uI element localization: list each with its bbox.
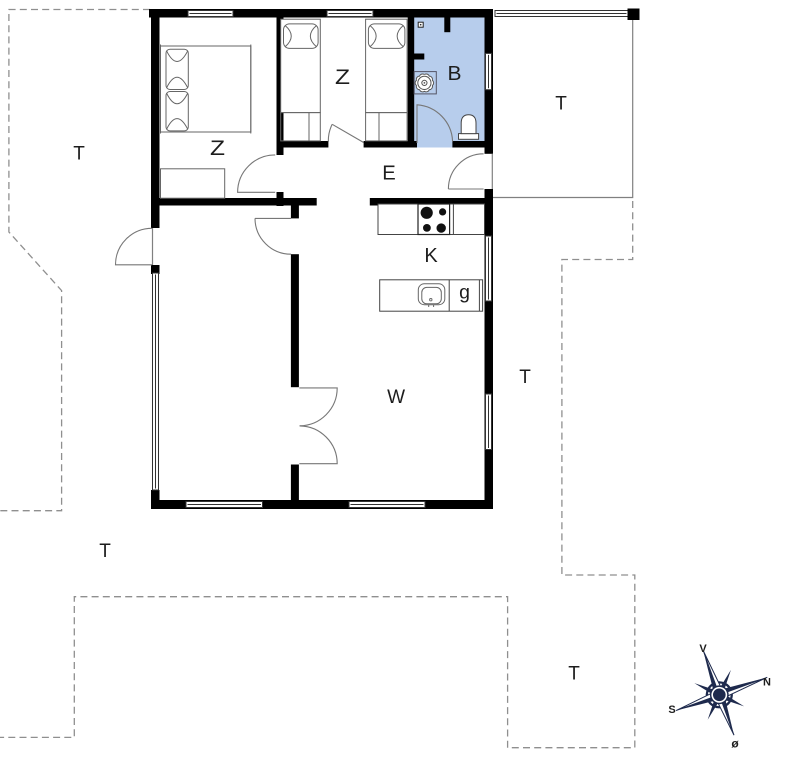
svg-text:W: W: [387, 387, 405, 408]
svg-text:T: T: [568, 664, 580, 685]
svg-text:g: g: [459, 282, 470, 304]
svg-text:T: T: [519, 367, 531, 388]
svg-text:Z: Z: [335, 66, 350, 89]
svg-text:T: T: [555, 94, 567, 115]
svg-text:B: B: [448, 63, 462, 85]
svg-text:N: N: [763, 677, 771, 689]
svg-text:Z: Z: [210, 137, 225, 160]
svg-text:K: K: [424, 245, 438, 267]
svg-text:E: E: [382, 163, 396, 185]
svg-text:T: T: [99, 541, 111, 562]
svg-text:S: S: [668, 704, 675, 716]
svg-text:T: T: [73, 144, 85, 165]
svg-text:ø: ø: [731, 737, 739, 751]
svg-text:V: V: [699, 643, 707, 655]
